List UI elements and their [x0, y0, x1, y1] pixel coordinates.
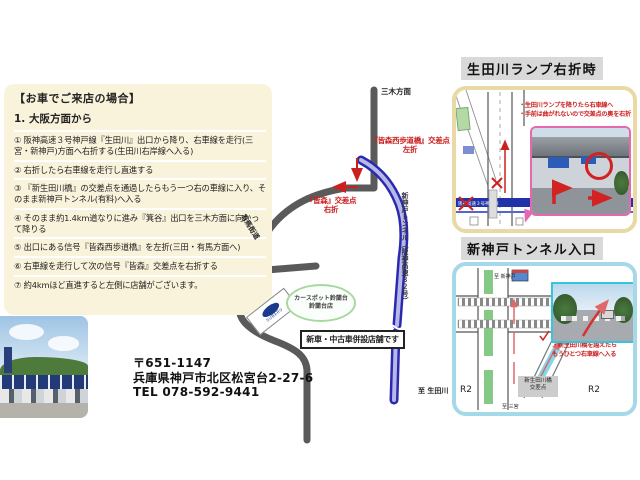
panel2-note2: もうひとつ右車線へ入る — [552, 351, 634, 360]
dealer-callout: カースポット鈴蘭台 鈴蘭台店 — [286, 284, 356, 322]
panel-tunnel: 至 新神戸 至 三宮 R2 R2 新生田川橋 交差点 ・新生田川橋を越えたら も… — [452, 262, 637, 416]
storefront-photo — [0, 316, 88, 418]
directions-subheading: 1. 大阪方面から — [14, 111, 266, 126]
direction-step-3: ③ 『新生田川橋』の交差点を通過したらもう一つ右の車線に入り、そのまま新神戸トン… — [14, 178, 266, 208]
postal-code: 〒651-1147 — [133, 356, 313, 371]
panel2-notes: ・新生田川橋を越えたら もうひとつ右車線へ入る — [552, 342, 634, 360]
intersection-line1: 新生田川橋 — [524, 378, 552, 384]
direction-step-1: ① 阪神高速３号神戸線『生田川』出口から降り、右車線を走行(三宮・新神戸)方面へ… — [14, 130, 266, 160]
direction-step-7: ⑦ 約4kmほど直進すると左側に店舗がございます。 — [14, 275, 266, 294]
phone-number: TEL 078-592-9441 — [133, 385, 313, 400]
panel1-note2: ・手前は曲がれないので交差点の奥を右折 — [519, 111, 635, 120]
green-sign-icon — [456, 107, 470, 130]
tunnel-approach-photo — [551, 282, 635, 343]
tunnel-road-label: 新神戸トンネル（阪神高速３２号） — [400, 192, 410, 337]
minamori-west-label: 『皆森西歩道橋』交差点 — [370, 136, 449, 145]
shin-ikutagawa-bridge-box: 新生田川橋 交差点 — [518, 376, 558, 397]
panel-ikutagawa: 阪神高速３号神戸線 阪神高速３号神戸線 『生田川』出口 右折 ・生田川ランプを降… — [452, 86, 637, 233]
crosswalk-1 — [458, 298, 558, 306]
pedestrian-bridge-box — [489, 190, 497, 218]
minamori-annotation: 『皆森』交差点 右折 — [294, 196, 368, 215]
street-address: 兵庫県神戸市北区松宮台2-27-6 — [133, 371, 313, 386]
minamori-west-action: 左折 — [403, 145, 417, 154]
photo-route-arrow — [583, 304, 605, 336]
directions-panel: 【お車でご来店の場合】 1. 大阪方面から ① 阪神高速３号神戸線『生田川』出口… — [4, 84, 272, 315]
median-strip-2 — [484, 310, 493, 356]
panel2-title: 新神戸トンネル入口 — [461, 237, 603, 260]
to-shinkobe-label: 至 新神戸 — [494, 273, 516, 280]
minamori-west-annotation: 『皆森西歩道橋』交差点 左折 — [348, 136, 472, 155]
direction-step-6: ⑥ 右車線を走行して次の信号『皆森』交差点を右折する — [14, 256, 266, 275]
ramp-photo — [530, 126, 631, 216]
dealership-building — [0, 375, 88, 389]
median-strip-3 — [484, 370, 493, 404]
r2-left-label: R2 — [460, 385, 472, 395]
to-sannomiya-label: 至 三宮 — [502, 403, 519, 410]
panel1-title: 生田川ランプ右折時 — [461, 57, 603, 80]
direction-step-4: ④ そのまま約1.4km道なりに進み『箕谷』出口を三木方面に向かって降りる — [14, 208, 266, 238]
miki-direction-label: 三木方面 — [381, 86, 411, 97]
panel1-note1: ・生田川ランプを降りたら右車線へ — [519, 102, 635, 111]
directions-heading: 【お車でご来店の場合】 — [14, 90, 266, 106]
minamori-label: 『皆森』交差点 — [306, 196, 356, 205]
address-block: 〒651-1147 兵庫県神戸市北区松宮台2-27-6 TEL 078-592-… — [133, 356, 313, 400]
intersection-line2: 交差点 — [530, 385, 547, 391]
panel1-notes: ・生田川ランプを降りたら右車線へ ・手前は曲がれないので交差点の奥を右折 — [519, 102, 635, 120]
shop-note-box: 新車・中古車併設店舗です — [300, 330, 405, 349]
panel2-note1: ・新生田川橋を越えたら — [552, 342, 634, 351]
to-ikutagawa-label: 至 生田川 — [418, 386, 448, 396]
minamori-action: 右折 — [324, 205, 338, 214]
dealer-sign-pole — [4, 347, 13, 374]
median-strip-1 — [484, 270, 493, 294]
dealer-callout-line1: カースポット鈴蘭台 — [294, 295, 348, 303]
direction-step-5: ⑤ 出口にある信号『皆森西歩道橋』を左折(三田・有馬方面へ) — [14, 237, 266, 256]
r2-right-label: R2 — [588, 385, 600, 395]
direction-step-2: ② 右折したら右車線を走行し直進する — [14, 160, 266, 179]
turn-right-arrow-icon — [554, 188, 564, 204]
car-lot — [0, 389, 88, 402]
crosswalk-2 — [458, 320, 558, 328]
dealer-callout-line2: 鈴蘭台店 — [309, 303, 333, 311]
access-map-page: { "directions": { "heading": "【お車でご来店の場合… — [0, 0, 640, 480]
